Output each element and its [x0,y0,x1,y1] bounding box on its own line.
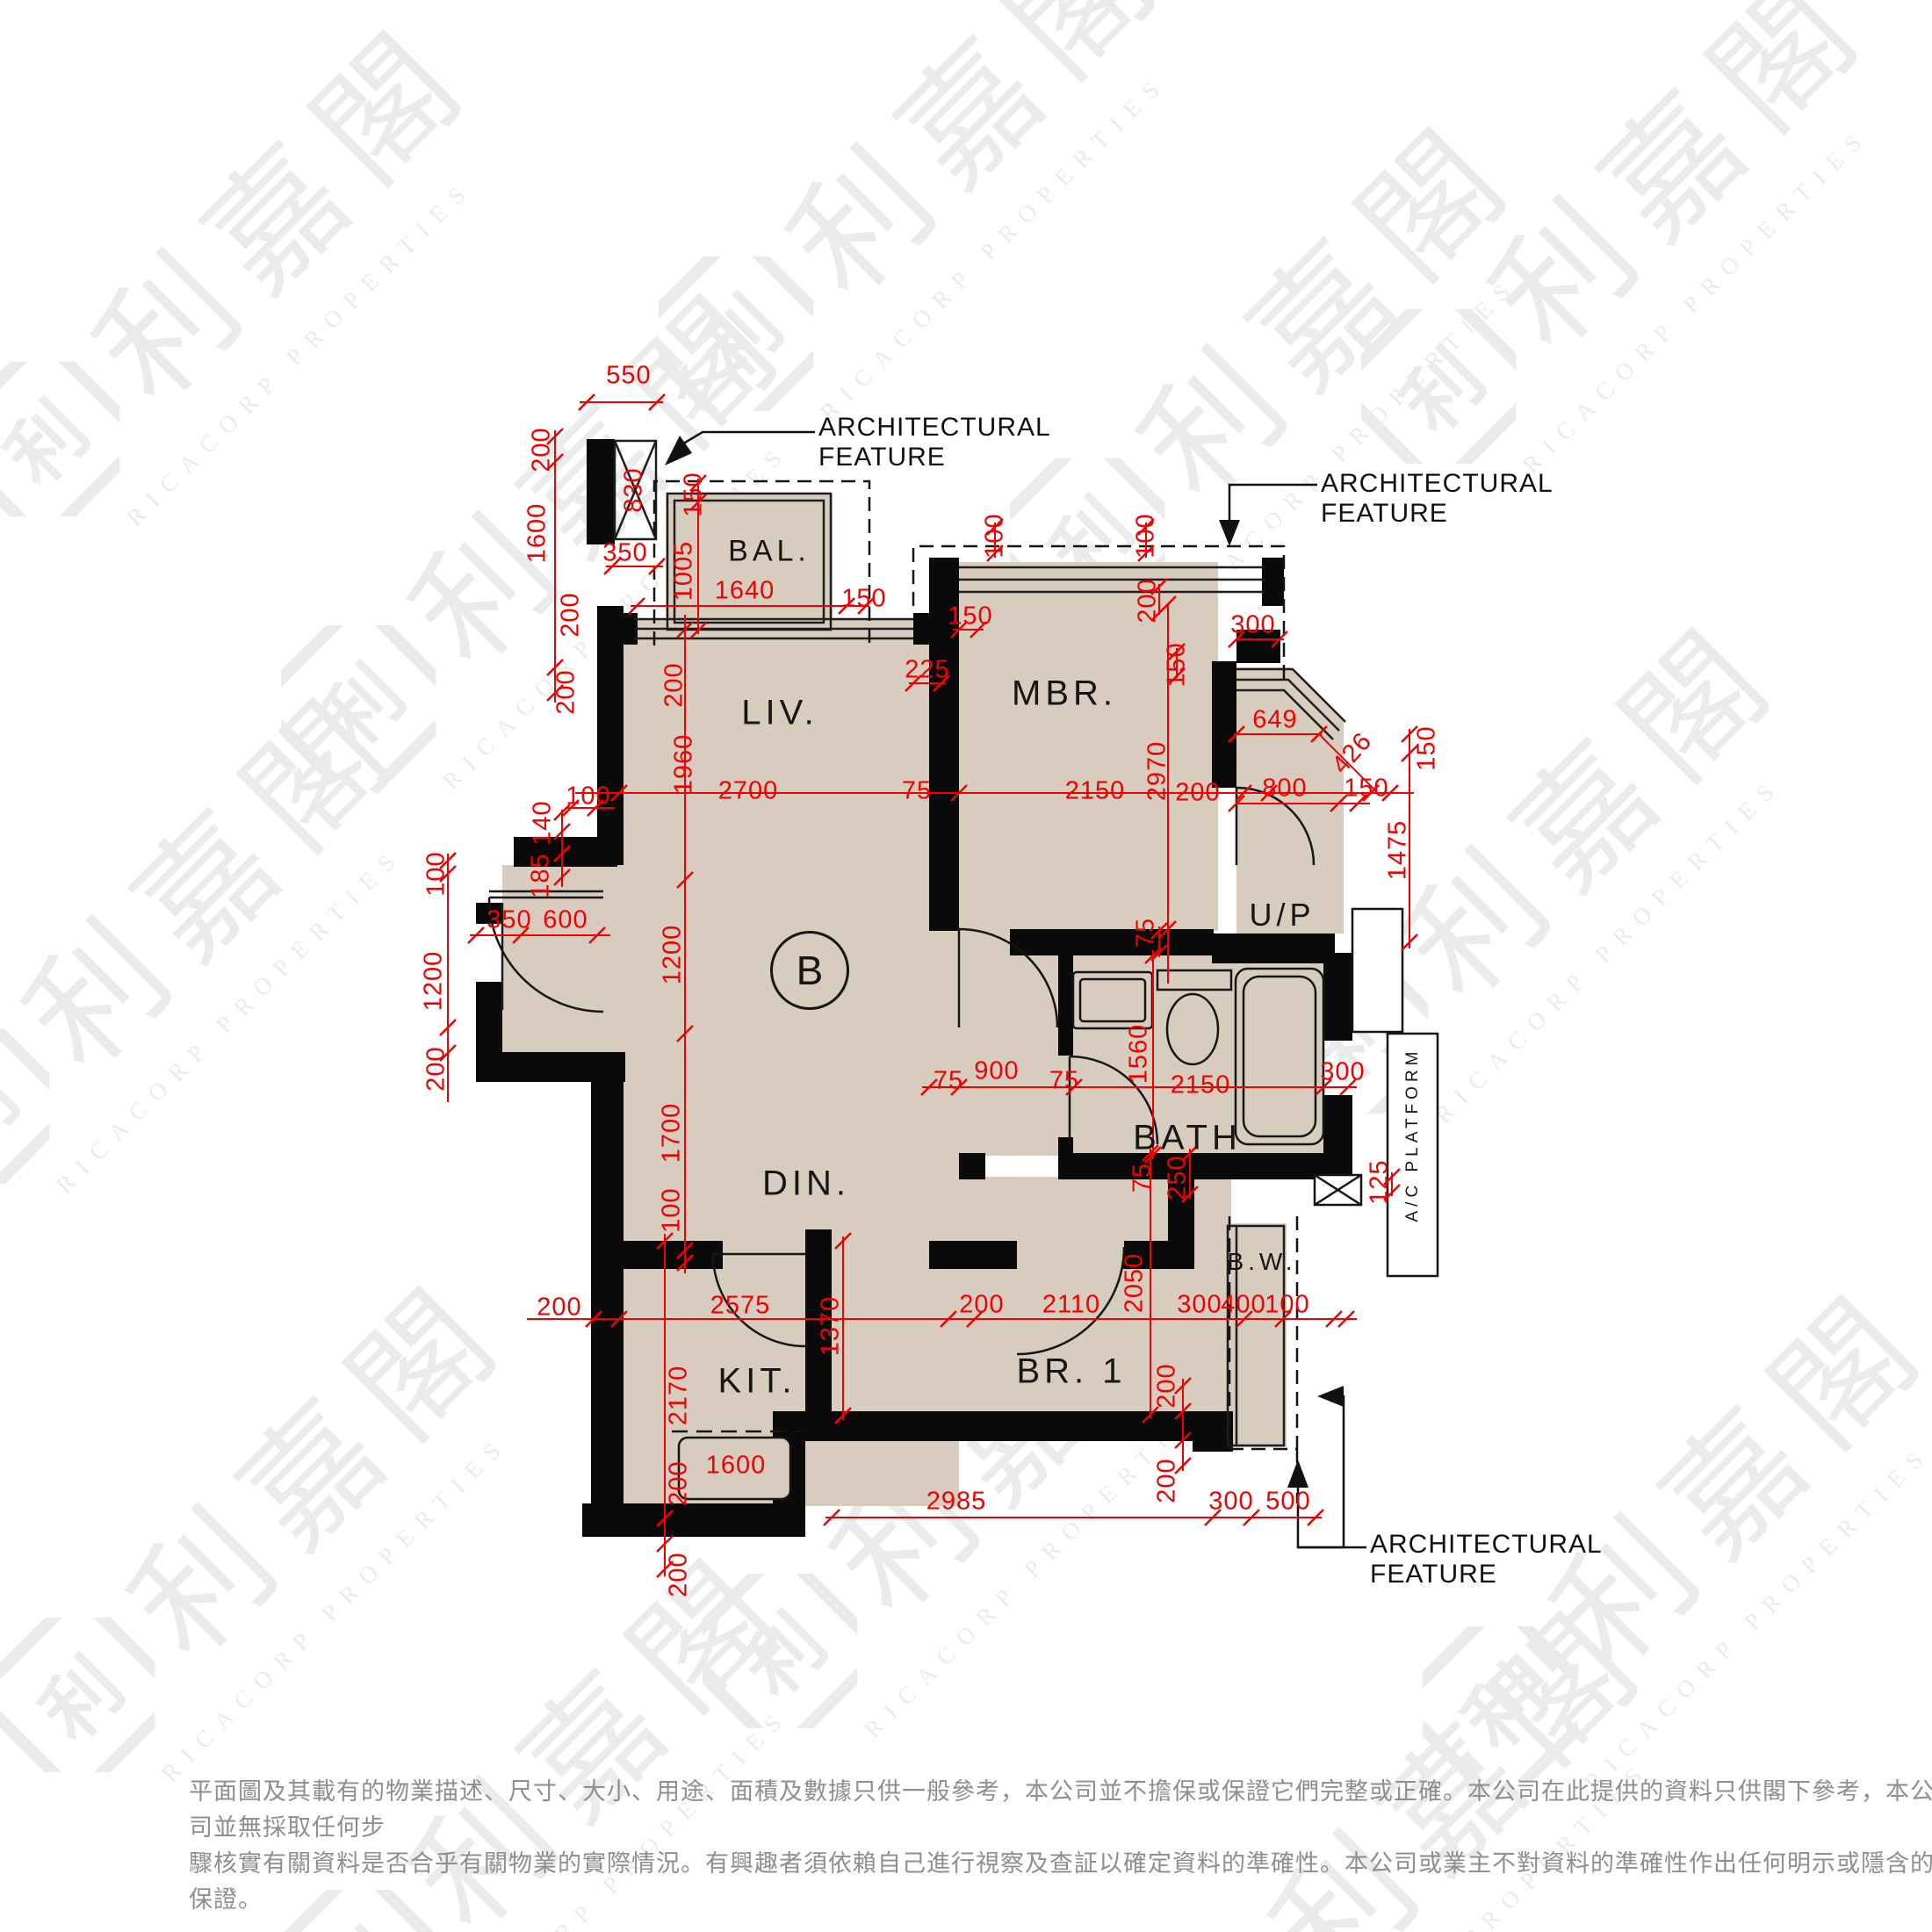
disclaimer: 平面圖及其載有的物業描述、尺寸、大小、用途、面積及數據只供一般參考，本公司並不擔… [189,1774,1932,1932]
dimension-label: 300 [1177,1291,1222,1320]
dimension-label: 100 [566,782,610,811]
dimension-label: 1370 [817,1296,846,1357]
dimension-label: 1200 [420,951,449,1012]
dimension-label: 100 [422,851,451,896]
room-label: BAL. [728,535,811,569]
architectural-feature-label: ARCHITECTURALFEATURE [1321,469,1554,529]
dimension-label: 350 [487,906,531,935]
dimension-label: 400 [1221,1291,1265,1320]
dimension-label: 250 [1164,1155,1193,1200]
room-label: A/C PLATFORM [1403,1048,1423,1222]
dimension-label: 150 [1344,775,1388,804]
dimension-label: 426 [1327,727,1379,780]
architectural-feature-label: ARCHITECTURALFEATURE [1370,1530,1603,1590]
dimension-label: 550 [606,362,651,391]
dimension-label: 200 [1175,779,1220,808]
dimension-label: 200 [665,1460,694,1505]
disclaimer-zh-line: 驟核實有關資料是否合乎有關物業的實際情況。有興趣者須依賴自己進行視察及查証以確定… [189,1846,1932,1918]
dimension-label: 300 [1208,1488,1253,1517]
dimension-label: 1640 [715,577,775,606]
dimension-label: 75 [1128,1163,1157,1193]
dimension-label: 225 [905,656,949,685]
unit-label: B [770,931,849,1010]
architectural-feature-label: ARCHITECTURALFEATURE [818,413,1051,472]
dimension-label: 200 [537,1294,581,1323]
dimension-label: 2575 [710,1292,771,1321]
dimension-label: 125 [1366,1159,1395,1204]
dimension-label: 75 [1132,918,1161,948]
room-label: BATH [1133,1119,1242,1158]
dimension-label: 200 [660,662,689,707]
dimension-label: 830 [620,467,649,512]
room-label: KIT. [718,1362,797,1402]
dimension-label: 150 [1413,725,1442,770]
dimension-label: 500 [1265,1488,1310,1517]
dimension-label: 2970 [1143,741,1172,802]
dimension-label: 150 [948,602,992,631]
dimension-label: 2150 [1065,777,1126,806]
room-label: LIV. [741,694,818,733]
dimension-label: 649 [1252,706,1297,735]
dimension-label: 600 [543,906,588,935]
room-label: DIN. [762,1164,850,1204]
dimension-label: 150 [841,585,886,614]
plan-labels: B BAL.LIV.MBR.U/PBATHB.W.A/C PLATFORMDIN… [0,0,1932,1932]
dimension-label: 1600 [706,1452,767,1481]
room-label: BR. 1 [1016,1352,1126,1392]
dimension-label: 2150 [1171,1071,1231,1100]
dimension-label: 140 [529,800,558,845]
dimension-label: 1475 [1384,820,1413,881]
dimension-label: 1600 [523,503,552,564]
room-label: U/P [1249,897,1315,934]
dimension-label: 300 [1320,1058,1365,1087]
dimension-label: 2700 [718,777,779,806]
dimension-label: 350 [602,539,647,568]
dimension-label: 200 [665,1552,694,1597]
floorplan-page: 利利嘉閣RICACORP PROPERTIES利利嘉閣RICACORP PROP… [0,0,1932,1932]
dimension-label: 2050 [1121,1253,1150,1314]
dimension-label: 150 [680,472,709,516]
dimension-label: 200 [1134,578,1163,623]
dimension-label: 200 [557,592,586,637]
dimension-label: 200 [528,427,557,472]
dimension-label: 2110 [1042,1291,1100,1320]
dimension-label: 75 [934,1067,963,1096]
dimension-label: 150 [1163,642,1192,687]
dimension-label: 75 [902,777,932,806]
dimension-label: 200 [959,1291,1004,1320]
dimension-label: 900 [974,1057,1019,1086]
dimension-label: 185 [527,853,556,898]
dimension-label: 200 [422,1046,451,1091]
room-label: MBR. [1012,674,1117,714]
dimension-label: 2170 [665,1366,694,1426]
dimension-label: 100 [1265,1291,1309,1320]
dimension-label: 2985 [926,1488,987,1517]
dimension-label: 200 [552,669,581,714]
dimension-label: 200 [1153,1363,1182,1408]
dimension-label: 1005 [670,541,699,602]
dimension-label: 200 [1153,1458,1182,1503]
dimension-label: 1560 [1125,1024,1154,1085]
dimension-label: 100 [658,1187,687,1232]
dimension-label: 800 [1262,775,1307,804]
dimension-label: 1960 [670,734,699,795]
dimension-label: 100 [981,513,1010,558]
dimension-label: 75 [1049,1067,1079,1096]
room-label: B.W. [1227,1248,1296,1276]
dimension-label: 1700 [658,1103,687,1164]
dimension-label: 100 [1132,513,1161,558]
disclaimer-zh-line: 平面圖及其載有的物業描述、尺寸、大小、用途、面積及數據只供一般參考，本公司並不擔… [189,1774,1932,1846]
dimension-label: 1200 [659,925,688,985]
disclaimer-en-line: Floor plans and the description, measure… [189,1928,1932,1932]
dimension-label: 300 [1230,611,1275,640]
